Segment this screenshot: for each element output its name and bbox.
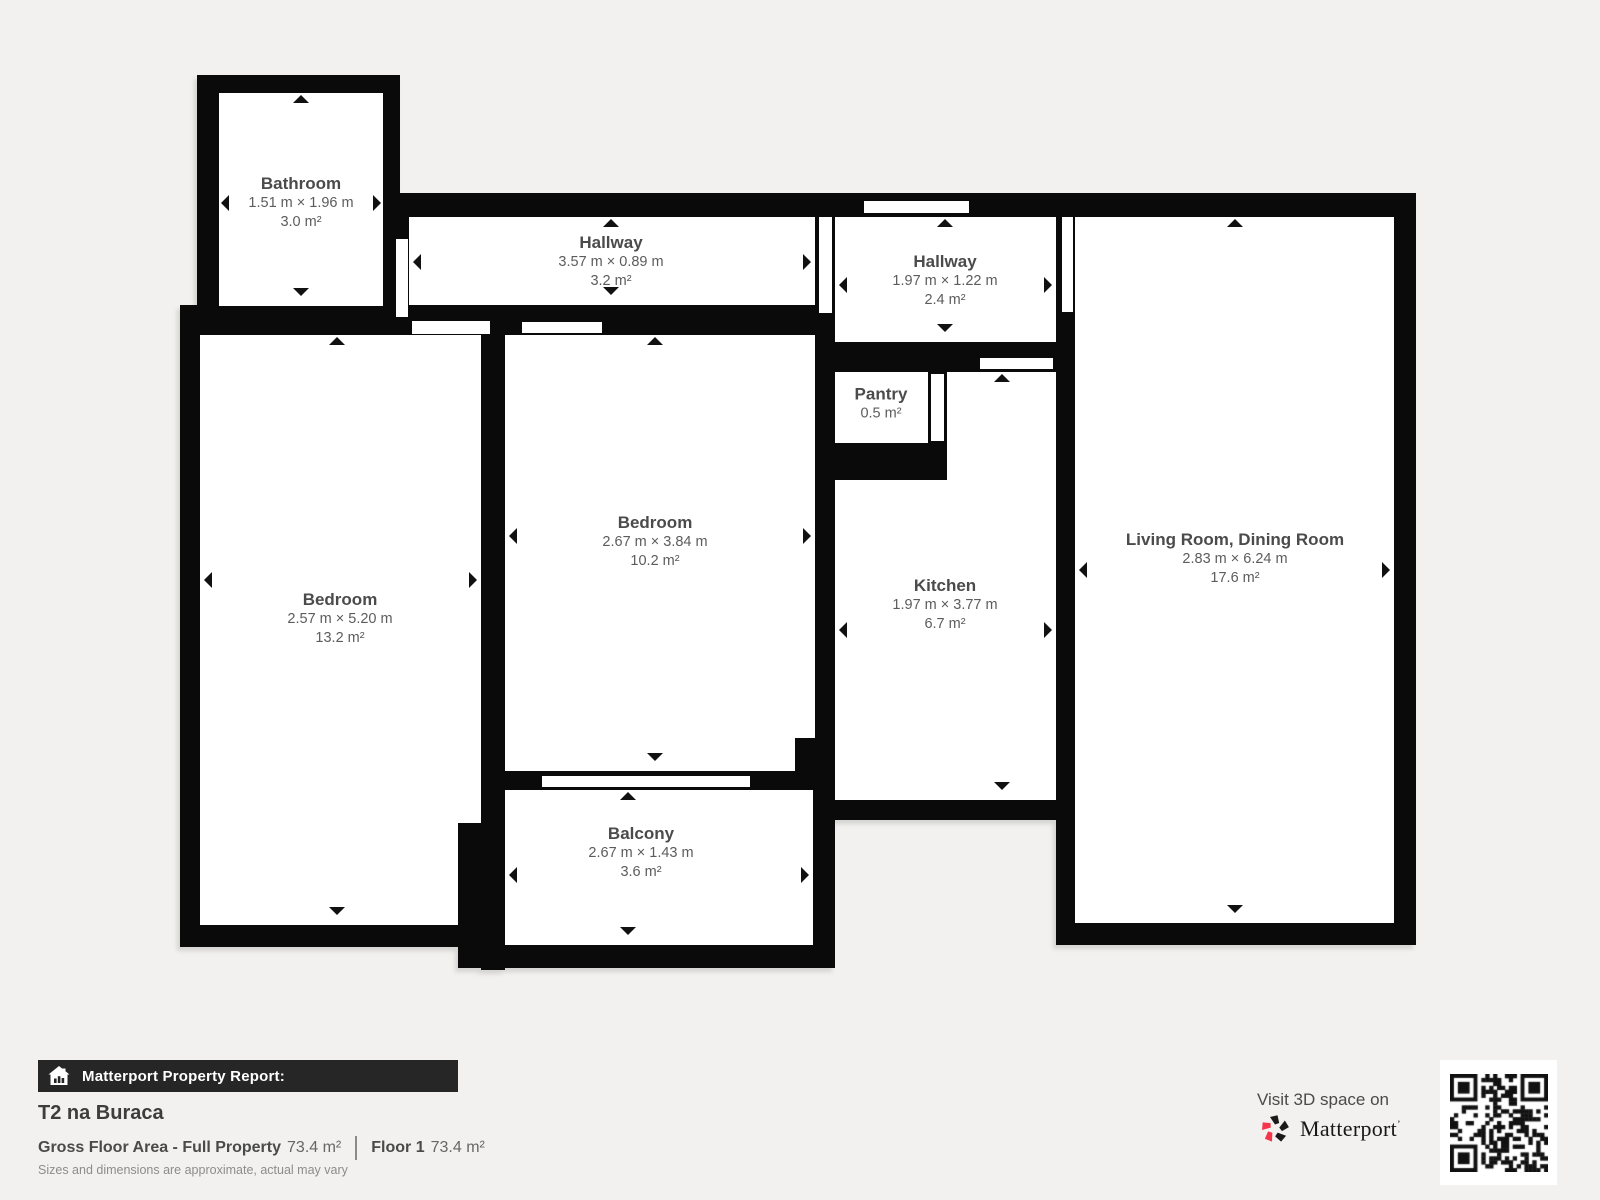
room-area — [835, 480, 1056, 800]
qr-tile — [1440, 1060, 1557, 1185]
qr-code — [1450, 1074, 1548, 1172]
dimension-arrow — [620, 792, 636, 800]
door-opening — [396, 239, 408, 317]
room-name: Bathroom — [248, 174, 353, 194]
room-name: Kitchen — [892, 576, 997, 596]
room-dimensions: 1.97 m × 3.77 m — [892, 596, 997, 615]
dimension-arrow — [469, 572, 477, 588]
room-label: Pantry0.5 m² — [855, 385, 908, 424]
dimension-arrow — [1227, 219, 1243, 227]
dimension-arrow — [994, 782, 1010, 790]
dimension-arrow — [1079, 562, 1087, 578]
dimension-arrow — [221, 195, 229, 211]
wall-segment — [180, 305, 835, 335]
dimension-arrow — [1227, 905, 1243, 913]
room-name: Bedroom — [602, 513, 707, 533]
door-opening — [980, 358, 1053, 369]
dimension-arrow — [937, 324, 953, 332]
door-opening — [1062, 217, 1073, 312]
wall-segment — [458, 945, 835, 968]
dimension-arrow — [839, 622, 847, 638]
wall-segment — [1394, 193, 1416, 945]
wall-segment — [795, 738, 815, 773]
disclaimer-text: Sizes and dimensions are approximate, ac… — [38, 1163, 348, 1177]
room-area-value: 17.6 m² — [1126, 569, 1344, 588]
room-dimensions: 1.97 m × 1.22 m — [892, 272, 997, 291]
door-opening — [522, 322, 602, 333]
dimension-arrow — [329, 337, 345, 345]
matterport-wordmark: Matterportʼ — [1300, 1116, 1401, 1142]
dimension-arrow — [603, 219, 619, 227]
room-area-value: 3.0 m² — [248, 213, 353, 232]
room-name: Hallway — [892, 252, 997, 272]
door-opening — [931, 374, 944, 441]
matterport-logo-icon — [1258, 1114, 1292, 1144]
dimension-arrow — [509, 528, 517, 544]
visit-3d-text: Visit 3D space on — [1228, 1090, 1418, 1110]
room-label: Bathroom1.51 m × 1.96 m3.0 m² — [248, 174, 353, 232]
divider — [355, 1136, 357, 1160]
dimension-arrow — [647, 753, 663, 761]
room-label: Bedroom2.57 m × 5.20 m13.2 m² — [287, 590, 392, 648]
door-opening — [412, 321, 490, 334]
report-bar-label: Matterport Property Report: — [82, 1068, 285, 1085]
dimension-arrow — [293, 95, 309, 103]
wall-segment — [815, 443, 947, 480]
door-opening — [542, 776, 750, 787]
dimension-arrow — [509, 867, 517, 883]
dimension-arrow — [603, 287, 619, 295]
room-area-value: 0.5 m² — [855, 405, 908, 424]
dimension-arrow — [839, 277, 847, 293]
property-title: T2 na Buraca — [38, 1102, 164, 1125]
wall-segment — [815, 800, 1075, 820]
dimension-arrow — [293, 288, 309, 296]
room-dimensions: 2.83 m × 6.24 m — [1126, 550, 1344, 569]
dimension-arrow — [1382, 562, 1390, 578]
room-label: Living Room, Dining Room2.83 m × 6.24 m1… — [1126, 530, 1344, 588]
room-dimensions: 2.57 m × 5.20 m — [287, 610, 392, 629]
room-label: Hallway1.97 m × 1.22 m2.4 m² — [892, 252, 997, 310]
wall-segment — [180, 305, 200, 947]
dimension-arrow — [373, 195, 381, 211]
room-label: Balcony2.67 m × 1.43 m3.6 m² — [588, 824, 693, 882]
room-area — [947, 372, 1056, 480]
dimension-arrow — [937, 219, 953, 227]
dimension-arrow — [204, 572, 212, 588]
door-opening — [819, 217, 832, 313]
room-area-value: 6.7 m² — [892, 615, 997, 634]
wall-segment — [458, 823, 490, 925]
dimension-arrow — [647, 337, 663, 345]
wall-segment — [180, 925, 505, 947]
room-dimensions: 3.57 m × 0.89 m — [558, 253, 663, 272]
house-chart-icon — [48, 1066, 70, 1086]
room-name: Pantry — [855, 385, 908, 405]
floor-plan: Bathroom1.51 m × 1.96 m3.0 m²Hallway3.57… — [0, 0, 1600, 1000]
room-name: Living Room, Dining Room — [1126, 530, 1344, 550]
room-label: Hallway3.57 m × 0.89 m3.2 m² — [558, 233, 663, 291]
floor-value: 73.4 m² — [431, 1139, 485, 1157]
room-area-value: 13.2 m² — [287, 629, 392, 648]
room-dimensions: 2.67 m × 1.43 m — [588, 844, 693, 863]
gfa-value: 73.4 m² — [287, 1139, 341, 1157]
dimension-arrow — [413, 254, 421, 270]
room-dimensions: 2.67 m × 3.84 m — [602, 533, 707, 552]
room-label: Bedroom2.67 m × 3.84 m10.2 m² — [602, 513, 707, 571]
dimension-arrow — [801, 867, 809, 883]
room-dimensions: 1.51 m × 1.96 m — [248, 194, 353, 213]
room-area-value: 2.4 m² — [892, 291, 997, 310]
room-label: Kitchen1.97 m × 3.77 m6.7 m² — [892, 576, 997, 634]
dimension-arrow — [803, 254, 811, 270]
dimension-arrow — [1044, 277, 1052, 293]
room-area-value: 10.2 m² — [602, 552, 707, 571]
room-name: Bedroom — [287, 590, 392, 610]
floor-area-line: Gross Floor Area - Full Property 73.4 m²… — [38, 1136, 485, 1160]
dimension-arrow — [803, 528, 811, 544]
door-opening — [864, 201, 969, 213]
floor-label: Floor 1 — [371, 1139, 424, 1157]
dimension-arrow — [329, 907, 345, 915]
dimension-arrow — [1044, 622, 1052, 638]
room-name: Hallway — [558, 233, 663, 253]
room-area-value: 3.6 m² — [588, 863, 693, 882]
dimension-arrow — [620, 927, 636, 935]
wall-segment — [1056, 923, 1416, 945]
gfa-label: Gross Floor Area - Full Property — [38, 1139, 281, 1157]
room-name: Balcony — [588, 824, 693, 844]
matterport-link[interactable]: Matterportʼ — [1258, 1114, 1401, 1144]
dimension-arrow — [994, 374, 1010, 382]
report-bar: Matterport Property Report: — [38, 1060, 458, 1092]
